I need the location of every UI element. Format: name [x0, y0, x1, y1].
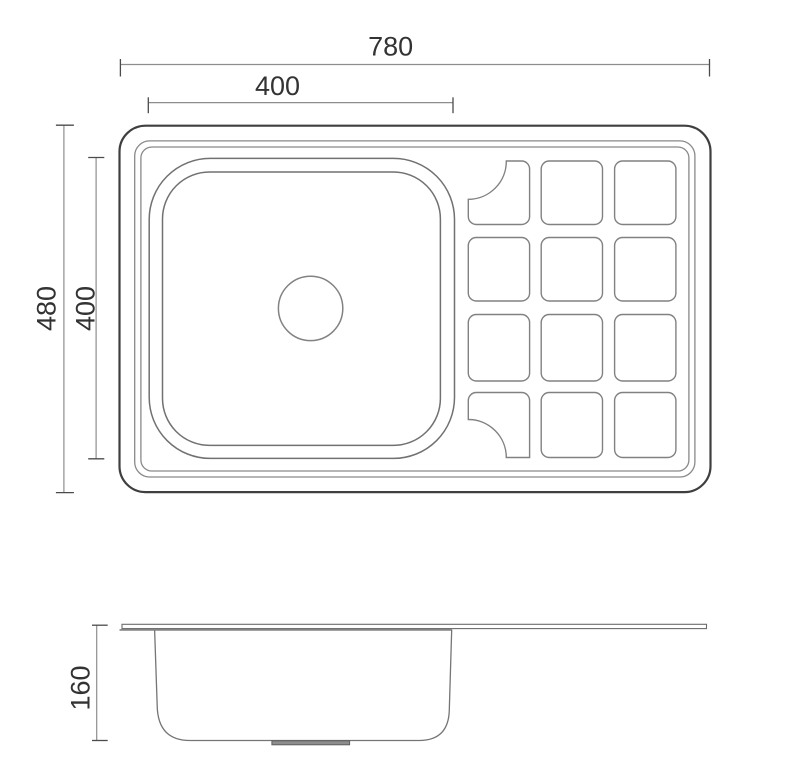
svg-text:160: 160: [66, 665, 96, 710]
svg-text:480: 480: [31, 286, 61, 331]
svg-text:400: 400: [255, 71, 300, 101]
svg-text:400: 400: [71, 286, 101, 331]
svg-text:780: 780: [368, 32, 413, 62]
